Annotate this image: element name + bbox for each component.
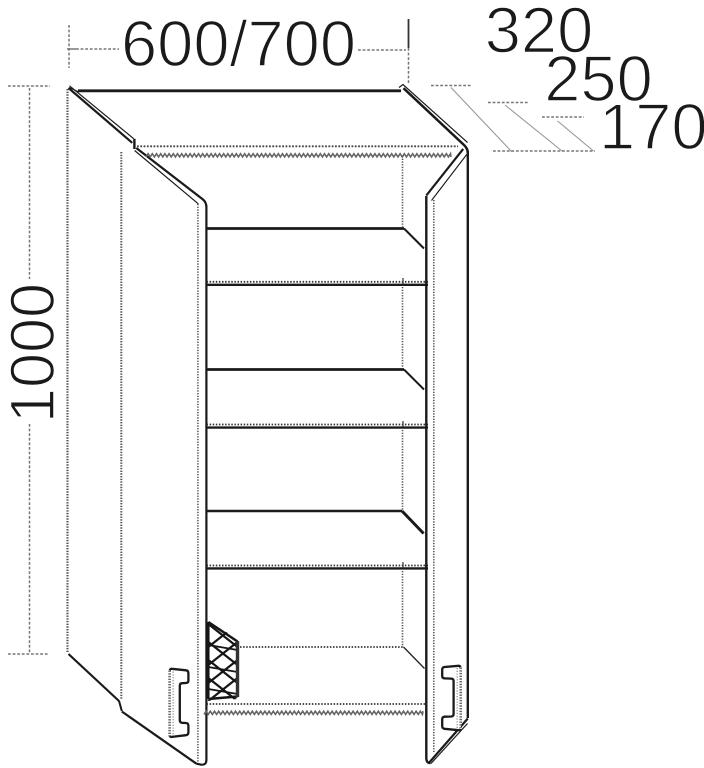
svg-text:1000: 1000 (0, 283, 68, 423)
svg-text:600/700: 600/700 (121, 7, 356, 80)
svg-text:170: 170 (599, 90, 704, 163)
